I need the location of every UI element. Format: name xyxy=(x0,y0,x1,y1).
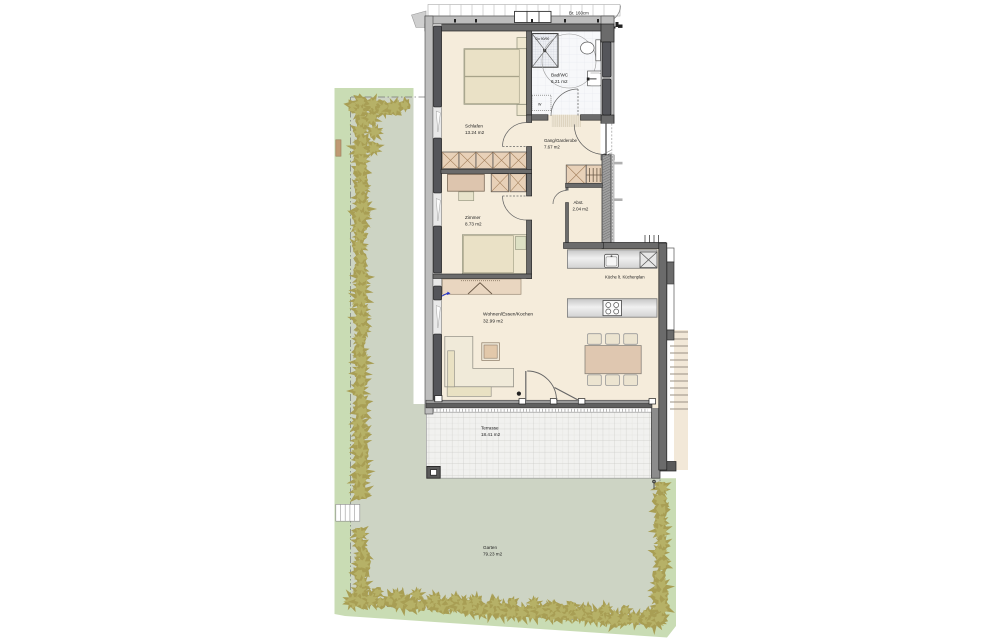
svg-text:Gang/Garderobe: Gang/Garderobe xyxy=(544,138,578,143)
svg-text:Zimmer: Zimmer xyxy=(465,215,481,220)
svg-text:Küche lt. Küchenplan: Küche lt. Küchenplan xyxy=(605,275,645,280)
svg-text:Terrasse: Terrasse xyxy=(481,426,499,431)
svg-text:6.21 m2: 6.21 m2 xyxy=(551,79,568,84)
svg-text:Bad/WC: Bad/WC xyxy=(551,73,569,78)
svg-text:Schlafen: Schlafen xyxy=(465,124,483,129)
svg-text:32.99 m2: 32.99 m2 xyxy=(483,319,503,325)
svg-text:Abst.: Abst. xyxy=(574,200,584,205)
svg-text:Br. 160cm: Br. 160cm xyxy=(569,11,589,16)
svg-text:13.24 m2: 13.24 m2 xyxy=(465,130,485,135)
svg-text:Garten: Garten xyxy=(483,545,497,550)
svg-text:Wohnen/Essen/Kochen: Wohnen/Essen/Kochen xyxy=(483,312,533,318)
svg-text:18.41 m2: 18.41 m2 xyxy=(481,432,501,437)
svg-text:79.23 m2: 79.23 m2 xyxy=(483,552,503,557)
svg-text:8.73 m2: 8.73 m2 xyxy=(465,222,482,227)
svg-text:7.67 m2: 7.67 m2 xyxy=(544,145,560,150)
svg-text:Du 90/90: Du 90/90 xyxy=(536,37,550,41)
svg-text:2.04 m2: 2.04 m2 xyxy=(573,207,589,212)
svg-text:W: W xyxy=(538,103,542,107)
